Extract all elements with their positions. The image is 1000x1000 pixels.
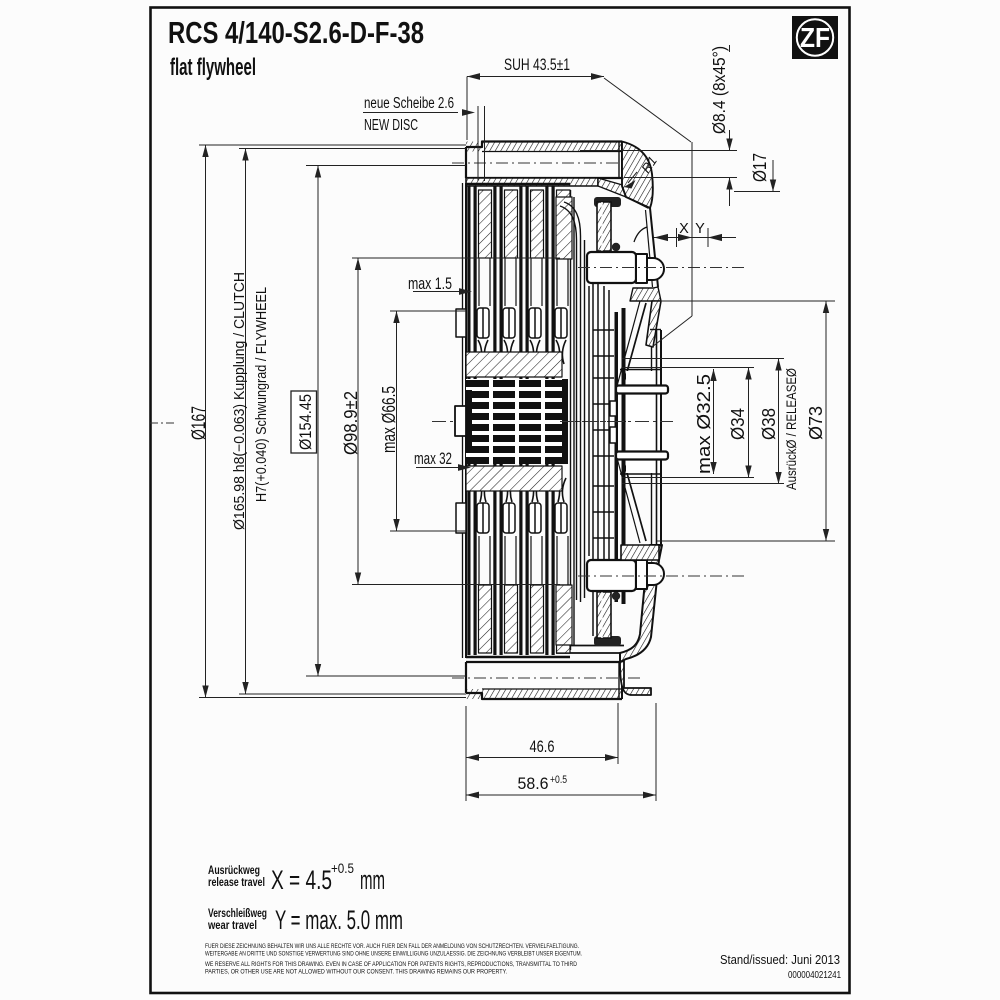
svg-text:neue Scheibe 2.6: neue Scheibe 2.6 — [364, 95, 454, 112]
svg-text:wear travel: wear travel — [207, 920, 257, 932]
svg-text:max Ø32.5: max Ø32.5 — [694, 374, 714, 474]
svg-text:Ausrückweg: Ausrückweg — [208, 865, 260, 877]
svg-text:flat flywheel: flat flywheel — [170, 54, 256, 81]
svg-text:Y = max. 5.0 mm: Y = max. 5.0 mm — [275, 905, 403, 935]
svg-text:Y: Y — [695, 221, 705, 237]
svg-text:max Ø66.5: max Ø66.5 — [379, 386, 399, 453]
svg-text:H7(+0.040) Schwungrad / FLYWHE: H7(+0.040) Schwungrad / FLYWHEEL — [254, 287, 270, 502]
svg-text:000004021241: 000004021241 — [788, 970, 841, 981]
svg-text:FUER DIESE ZEICHNUNG BEHALTEN: FUER DIESE ZEICHNUNG BEHALTEN WIR UNS AL… — [205, 943, 579, 950]
svg-text:Ø73: Ø73 — [806, 406, 826, 440]
svg-text:Stand/issued: Juni 2013: Stand/issued: Juni 2013 — [720, 952, 840, 967]
svg-text:X = 4.5: X = 4.5 — [271, 865, 332, 895]
svg-text:Ø167: Ø167 — [189, 406, 210, 440]
svg-text:58.6: 58.6 — [518, 774, 549, 793]
svg-text:ZF: ZF — [800, 22, 830, 53]
svg-text:46.6: 46.6 — [530, 737, 555, 756]
svg-text:Ø98.9±2: Ø98.9±2 — [341, 391, 361, 455]
svg-text:release travel: release travel — [208, 877, 265, 889]
svg-text:AusrückØ / RELEASEØ: AusrückØ / RELEASEØ — [783, 368, 799, 490]
svg-text:X: X — [679, 221, 689, 237]
svg-text:Ø38: Ø38 — [759, 408, 779, 440]
svg-text:WE RESERVE ALL RIGHTS FOR THIS: WE RESERVE ALL RIGHTS FOR THIS DRAWING. … — [205, 961, 577, 968]
svg-text:RCS 4/140-S2.6-D-F-38: RCS 4/140-S2.6-D-F-38 — [168, 15, 424, 50]
svg-text:Ø34: Ø34 — [728, 408, 748, 440]
svg-text:NEW DISC: NEW DISC — [364, 117, 418, 134]
svg-text:max 32: max 32 — [414, 450, 452, 468]
svg-text:mm: mm — [360, 865, 385, 895]
svg-text:Verschleißweg: Verschleißweg — [208, 908, 267, 920]
svg-text:WEITERGABE AN DRITTE UND SONST: WEITERGABE AN DRITTE UND SONSTIGE VERWER… — [205, 951, 582, 958]
svg-text:Ø17: Ø17 — [750, 153, 770, 182]
svg-text:Ø165.98 h8(−0.063) Kupplung /: Ø165.98 h8(−0.063) Kupplung / CLUTCH — [232, 272, 248, 530]
svg-text:PARTIES, OR OTHER USE ARE NOT: PARTIES, OR OTHER USE ARE NOT ALLOWED WI… — [205, 969, 507, 976]
svg-text:+0.5: +0.5 — [550, 774, 567, 786]
svg-text:SUH 43.5±1: SUH 43.5±1 — [504, 55, 570, 74]
svg-text:Ø8.4 (8x45°): Ø8.4 (8x45°) — [709, 46, 729, 134]
svg-text:+0.5: +0.5 — [331, 860, 354, 876]
svg-text:max 1.5: max 1.5 — [408, 275, 452, 293]
svg-text:Ø154.45: Ø154.45 — [297, 394, 315, 450]
